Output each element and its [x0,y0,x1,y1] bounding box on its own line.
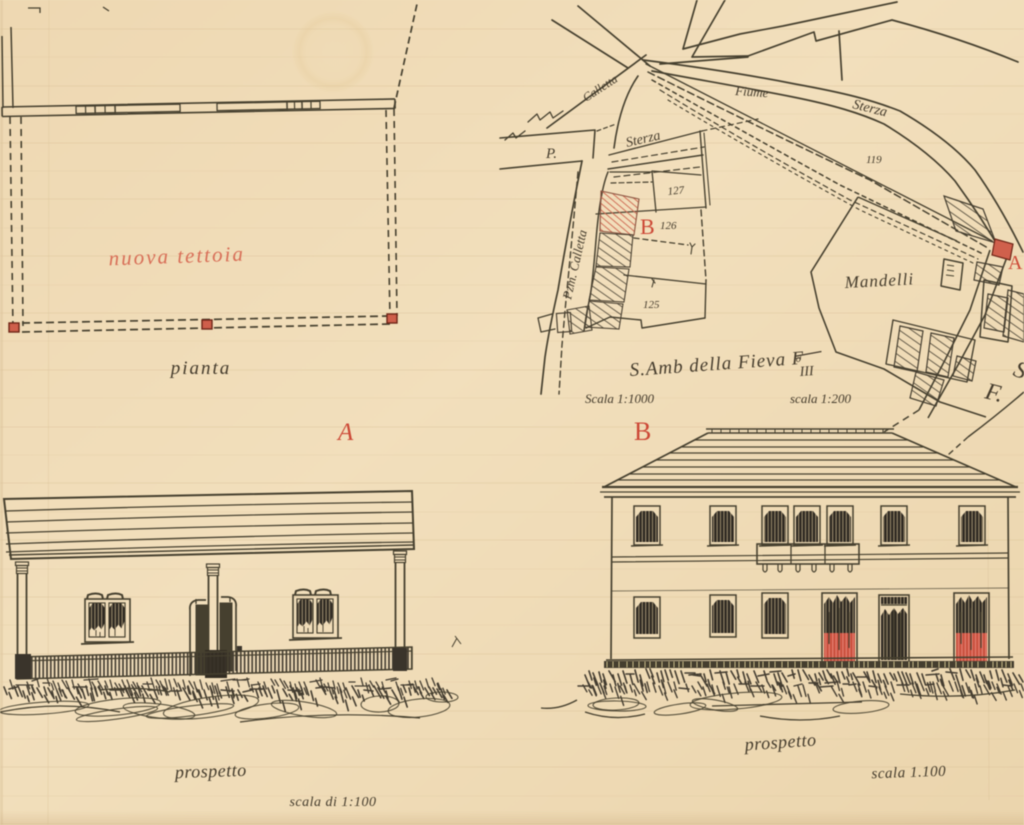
svg-text:pianta: pianta [169,358,232,379]
svg-text:A: A [336,419,354,446]
svg-text:126: 126 [660,220,677,232]
svg-text:scala di 1:100: scala di 1:100 [289,795,376,810]
svg-text:Mandelli: Mandelli [843,269,914,292]
svg-text:scala 1:200: scala 1:200 [790,391,852,406]
svg-text:B: B [634,417,651,446]
svg-text:III: III [798,364,815,380]
svg-text:Fiume: Fiume [734,83,769,100]
svg-text:125: 125 [643,299,660,311]
svg-text:scala 1.100: scala 1.100 [871,764,946,783]
svg-text:127: 127 [667,184,685,198]
svg-text:A: A [1008,252,1023,274]
svg-text:119: 119 [866,154,882,166]
svg-text:nuova tettoia: nuova tettoia [108,242,245,271]
svg-text:B: B [640,214,655,239]
svg-text:prospetto: prospetto [173,760,247,783]
svg-text:Scala 1:1000: Scala 1:1000 [585,391,654,406]
svg-text:P.: P. [545,146,557,162]
